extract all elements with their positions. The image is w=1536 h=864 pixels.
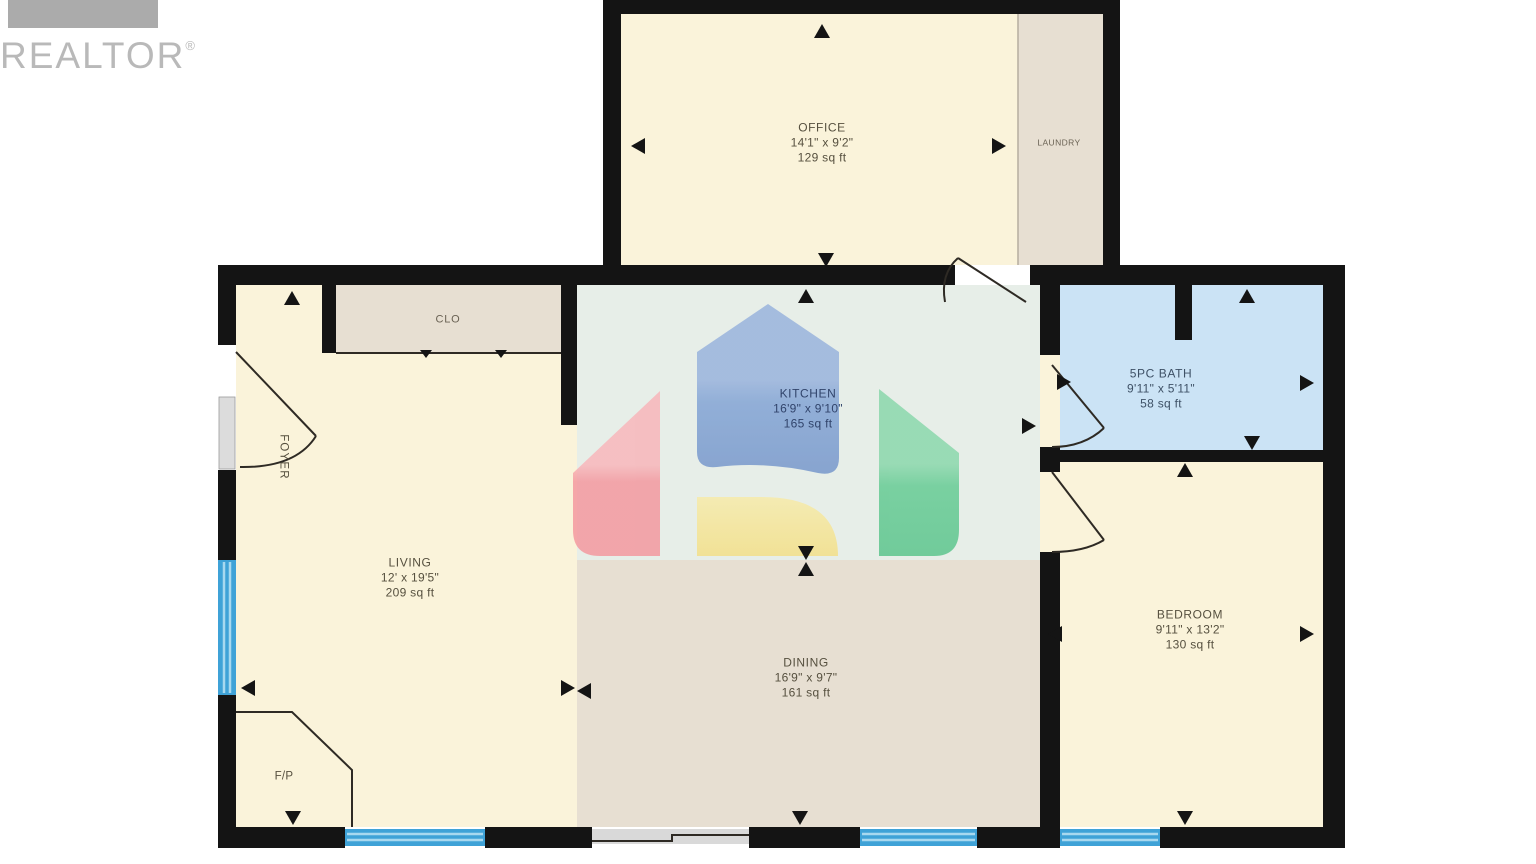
bath-area: 58 sq ft: [1127, 397, 1195, 412]
dining-bottom-window: [860, 829, 977, 846]
dining-name: DINING: [775, 656, 838, 671]
living-kitchen-wall: [561, 285, 577, 425]
bath-name: 5PC BATH: [1127, 367, 1195, 382]
closet-name: CLO: [435, 313, 460, 328]
room-label-laundry: LAUNDRY: [1037, 136, 1080, 151]
office-name: OFFICE: [791, 121, 854, 136]
room-label-office: OFFICE 14'1" x 9'2" 129 sq ft: [791, 121, 854, 166]
living-bottom-window: [345, 829, 485, 846]
living-name: LIVING: [381, 556, 439, 571]
room-label-fireplace: F/P: [275, 770, 294, 785]
kitchen-name: KITCHEN: [773, 387, 843, 402]
office-dimensions: 14'1" x 9'2": [791, 136, 854, 151]
office-area: 129 sq ft: [791, 151, 854, 166]
bath-wall-stub: [1175, 285, 1192, 340]
kitchen-dimensions: 16'9" x 9'10": [773, 402, 843, 417]
living-area: 209 sq ft: [381, 586, 439, 601]
room-label-bath: 5PC BATH 9'11" x 5'11" 58 sq ft: [1127, 367, 1195, 412]
bath-bedroom-wall: [1040, 450, 1323, 462]
floorplan-page: REALTOR®: [0, 0, 1536, 864]
entry-sidelight: [219, 397, 235, 469]
realtor-logo-bar: [8, 0, 158, 28]
dining-area: 161 sq ft: [775, 686, 838, 701]
living-left-window: [218, 560, 236, 695]
room-label-kitchen: KITCHEN 16'9" x 9'10" 165 sq ft: [773, 387, 843, 432]
room-label-closet: CLO: [435, 313, 460, 328]
fireplace-name: F/P: [275, 770, 294, 785]
bedroom-area: 130 sq ft: [1156, 638, 1225, 653]
realtor-logo-text: REALTOR®: [0, 28, 195, 74]
living-dimensions: 12' x 19'5": [381, 571, 439, 586]
floorplan-drawing: [0, 0, 1536, 864]
bedroom-dimensions: 9'11" x 13'2": [1156, 623, 1225, 638]
bedroom-name: BEDROOM: [1156, 608, 1225, 623]
kitchen-area: 165 sq ft: [773, 417, 843, 432]
closet-side-wall: [322, 285, 336, 353]
dining-dimensions: 16'9" x 9'7": [775, 671, 838, 686]
laundry-name: LAUNDRY: [1037, 136, 1080, 151]
registered-trademark-icon: ®: [185, 38, 195, 53]
realtor-wordmark: REALTOR: [0, 35, 185, 76]
bedroom-bottom-window: [1060, 829, 1160, 846]
foyer-name: FOYER: [276, 434, 291, 480]
room-label-living: LIVING 12' x 19'5" 209 sq ft: [381, 556, 439, 601]
bath-dimensions: 9'11" x 5'11": [1127, 382, 1195, 397]
room-label-dining: DINING 16'9" x 9'7" 161 sq ft: [775, 656, 838, 701]
room-label-bedroom: BEDROOM 9'11" x 13'2" 130 sq ft: [1156, 608, 1225, 653]
room-label-foyer: FOYER: [276, 434, 291, 480]
